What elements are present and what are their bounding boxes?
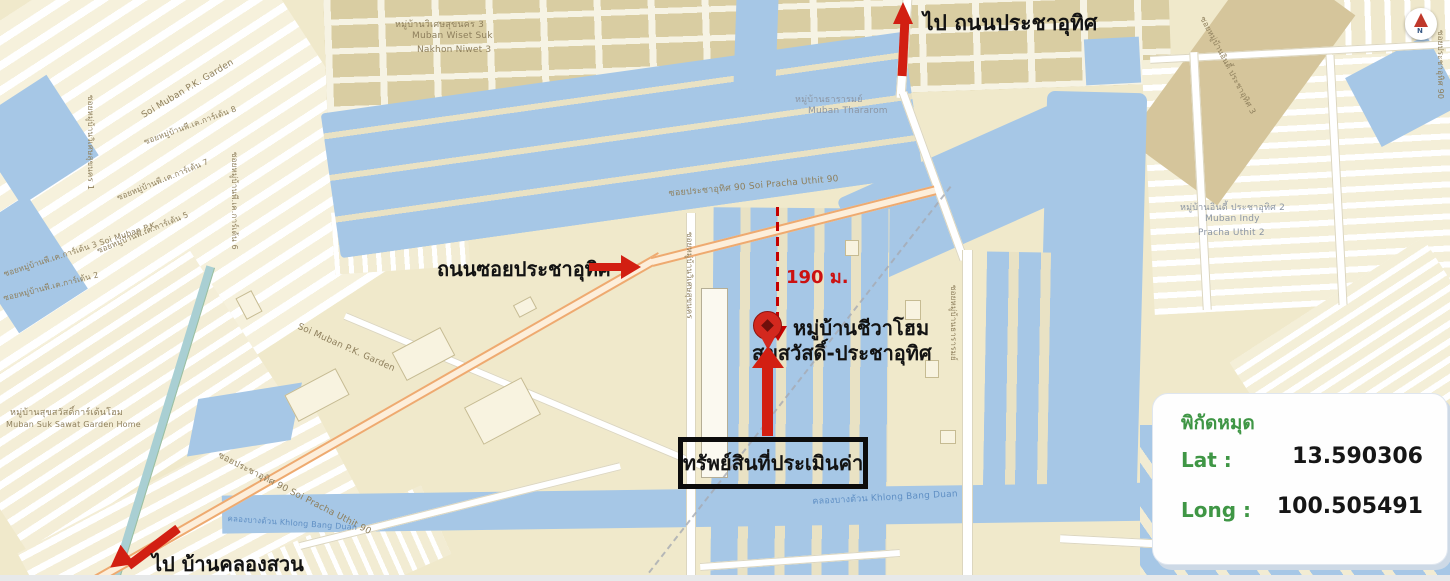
long-label: Long : xyxy=(1181,498,1251,522)
map-label-vertical-center: ซอยหมู่บ้านวิเศษสุขนคร xyxy=(683,232,696,319)
label-to-pracha-uthit: ไป ถนนประชาอุทิศ xyxy=(923,7,1097,40)
map-canvas[interactable]: หมู่บ้านวิเศษสุขนคร 3 Muban Wiset Suk Na… xyxy=(0,0,1450,581)
pond xyxy=(733,0,778,91)
pond xyxy=(1084,37,1141,86)
building xyxy=(464,377,541,445)
panel-title: พิกัดหมุด xyxy=(1181,408,1255,438)
arrow-right-shaft xyxy=(589,263,623,271)
map-label-indy-th: หมู่บ้านอินดี้ ประชาอุทิศ 2 xyxy=(1180,200,1285,214)
pin-coordinates-panel: พิกัดหมุด Lat : 13.590306 Long : 100.505… xyxy=(1152,393,1448,565)
building xyxy=(940,430,956,444)
north-letter: N xyxy=(1417,27,1423,35)
label-property: ทรัพย์สินที่ประเมินค่า xyxy=(683,447,863,479)
south-vertical-road xyxy=(962,250,973,581)
map-label-vertical-left: ซอยหมู่บ้านวิเศษสุขนคร 1 xyxy=(84,95,97,190)
arrow-right-icon xyxy=(621,255,641,279)
building xyxy=(845,240,859,256)
compass-control[interactable]: N xyxy=(1405,8,1437,40)
lat-value: 13.590306 xyxy=(1292,444,1423,469)
map-label-suksawat-th: หมู่บ้านสุขสวัสดิ์การ์เด้นโฮม xyxy=(10,405,123,419)
map-label-pk-soi6: ซอยหมู่บ้านพี.เค.การ์เด้น 6 xyxy=(228,152,241,250)
map-label-tararom-en: Muban Thararom xyxy=(808,106,888,116)
map-label-suksawat-en: Muban Suk Sawat Garden Home xyxy=(6,420,141,429)
arrow-up-icon xyxy=(752,346,784,368)
map-label-village-top-en2: Nakhon Niwet 3 xyxy=(417,45,491,55)
distance-dashed-line xyxy=(776,207,779,327)
right-long-pond xyxy=(1037,91,1147,493)
label-road-callout: ถนนซอยประชาอุทิศ xyxy=(437,253,611,285)
north-arrow-icon xyxy=(1414,13,1428,27)
property-arrow-shaft xyxy=(762,366,773,436)
map-label-indy-en2: Pracha Uthit 2 xyxy=(1198,228,1265,238)
long-value: 100.505491 xyxy=(1277,494,1423,519)
east-canals xyxy=(983,251,1051,487)
map-label-village-top-en1: Muban Wiset Suk xyxy=(412,31,493,41)
label-distance: 190 ม. xyxy=(786,262,849,291)
lat-label: Lat : xyxy=(1181,448,1232,472)
map-label-tararom-soi: ซอยหมู่บ้านธารารมย์ xyxy=(947,285,960,361)
property-box: ทรัพย์สินที่ประเมินค่า xyxy=(678,437,868,489)
map-label-village-top-th: หมู่บ้านวิเศษสุขนคร 3 xyxy=(395,17,484,31)
map-label-tararom-th: หมู่บ้านธารารมย์ xyxy=(795,92,863,106)
map-label-right-edge: ซอยประชาอุทิศ 90 xyxy=(1434,30,1447,99)
bottom-edge-band xyxy=(0,575,1450,581)
building xyxy=(513,296,537,318)
map-label-indy-en1: Muban Indy xyxy=(1205,214,1260,224)
